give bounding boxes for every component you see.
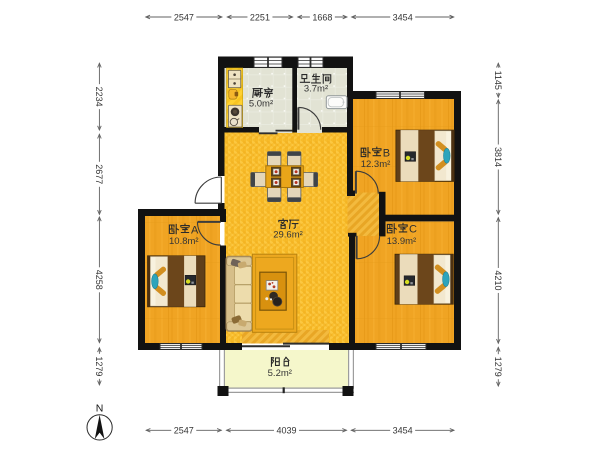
svg-text:2251: 2251 — [250, 12, 270, 22]
svg-text:3.7m²: 3.7m² — [304, 84, 328, 95]
svg-text:13.9m²: 13.9m² — [387, 236, 417, 247]
svg-text:3454: 3454 — [393, 426, 413, 436]
svg-text:1279: 1279 — [94, 356, 104, 376]
svg-text:1668: 1668 — [312, 12, 332, 22]
svg-text:B: B — [383, 148, 390, 160]
svg-text:4258: 4258 — [94, 270, 104, 290]
svg-text:12.3m²: 12.3m² — [361, 159, 391, 170]
svg-text:10.8m²: 10.8m² — [169, 236, 199, 247]
svg-text:N: N — [96, 403, 104, 415]
svg-text:2677: 2677 — [94, 164, 104, 184]
svg-text:29.6m²: 29.6m² — [273, 230, 303, 241]
svg-text:C: C — [409, 224, 417, 236]
svg-text:3814: 3814 — [493, 147, 503, 167]
svg-text:2547: 2547 — [174, 426, 194, 436]
svg-text:2234: 2234 — [94, 87, 104, 107]
svg-text:1279: 1279 — [493, 357, 503, 377]
svg-text:4210: 4210 — [493, 270, 503, 290]
svg-text:5.2m²: 5.2m² — [268, 368, 292, 379]
svg-text:5.0m²: 5.0m² — [249, 99, 273, 110]
svg-text:3454: 3454 — [393, 12, 413, 22]
svg-text:2547: 2547 — [174, 12, 194, 22]
svg-text:A: A — [191, 224, 199, 236]
svg-text:4039: 4039 — [276, 426, 296, 436]
svg-text:1145: 1145 — [493, 71, 503, 90]
